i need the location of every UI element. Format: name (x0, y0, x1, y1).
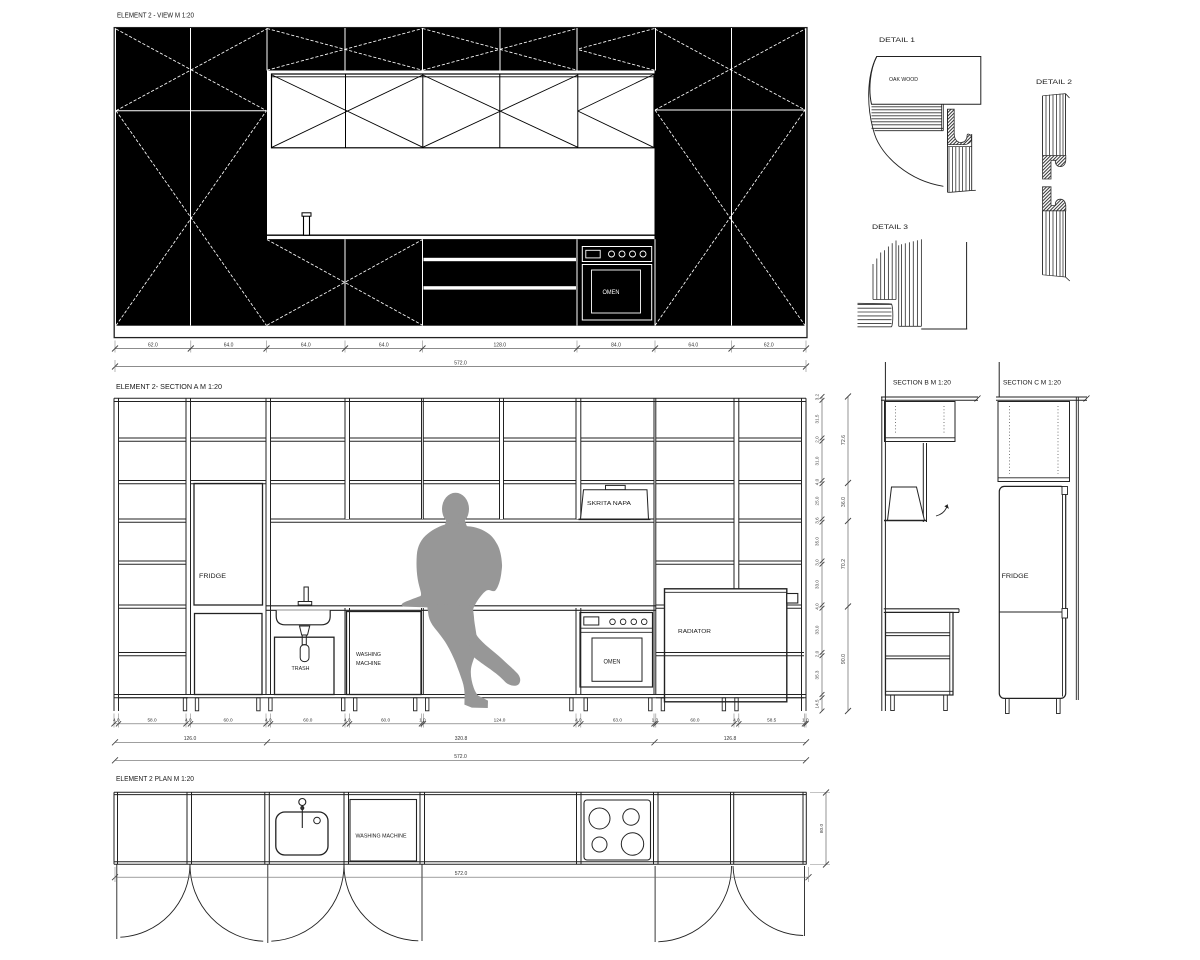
svg-text:1.0: 1.0 (419, 718, 426, 723)
svg-text:64.0: 64.0 (379, 342, 389, 348)
svg-text:3.0: 3.0 (815, 559, 820, 566)
svg-text:RADIATOR: RADIATOR (678, 629, 711, 635)
svg-text:58.5: 58.5 (767, 718, 777, 723)
svg-text:64.0: 64.0 (301, 342, 311, 348)
svg-text:3.2: 3.2 (815, 393, 820, 400)
svg-text:60.0: 60.0 (303, 718, 313, 723)
svg-text:SECTION C M 1:20: SECTION C M 1:20 (1003, 380, 1061, 387)
svg-text:4.0: 4.0 (344, 718, 351, 723)
svg-text:572.0: 572.0 (454, 360, 467, 366)
svg-text:2.0: 2.0 (815, 436, 820, 443)
svg-text:64.0: 64.0 (688, 342, 698, 348)
svg-text:128.0: 128.0 (494, 342, 507, 348)
svg-text:3.6: 3.6 (815, 517, 820, 524)
svg-text:4.0: 4.0 (185, 718, 192, 723)
svg-text:80.0: 80.0 (819, 824, 825, 834)
svg-text:572.0: 572.0 (455, 871, 468, 877)
svg-text:60.0: 60.0 (223, 718, 233, 723)
svg-text:OMEN: OMEN (603, 290, 620, 296)
svg-text:320.8: 320.8 (455, 736, 468, 742)
svg-text:126.8: 126.8 (724, 736, 737, 742)
svg-text:14.5: 14.5 (815, 699, 820, 708)
svg-text:DETAIL 1: DETAIL 1 (879, 37, 915, 44)
svg-text:TRASH: TRASH (292, 666, 310, 672)
svg-text:1.0: 1.0 (652, 718, 659, 723)
svg-text:62.0: 62.0 (764, 342, 774, 348)
svg-text:62.0: 62.0 (148, 342, 158, 348)
svg-text:35.0: 35.0 (815, 537, 820, 546)
svg-text:1.0: 1.0 (802, 718, 809, 723)
svg-text:60.0: 60.0 (690, 718, 700, 723)
svg-text:WASHING: WASHING (356, 652, 381, 658)
svg-text:31.0: 31.0 (815, 456, 820, 465)
svg-text:4.0: 4.0 (575, 718, 582, 723)
svg-text:4.0: 4.0 (733, 718, 740, 723)
svg-text:25.0: 25.0 (815, 496, 820, 505)
svg-text:MACHINE: MACHINE (356, 661, 381, 667)
svg-text:4.0: 4.0 (265, 718, 272, 723)
svg-text:WASHING MACHINE: WASHING MACHINE (356, 834, 407, 840)
svg-text:124.0: 124.0 (494, 718, 506, 723)
svg-text:OMEN: OMEN (604, 660, 621, 666)
svg-text:33.0: 33.0 (815, 580, 820, 589)
svg-text:4.0: 4.0 (113, 718, 120, 723)
svg-text:72.6: 72.6 (841, 435, 847, 445)
svg-text:35.3: 35.3 (815, 670, 820, 679)
svg-text:2.0: 2.0 (815, 650, 820, 657)
svg-text:31.5: 31.5 (815, 414, 820, 423)
svg-text:58.0: 58.0 (147, 718, 157, 723)
svg-text:36.0: 36.0 (841, 497, 847, 507)
svg-text:FRIDGE: FRIDGE (1002, 573, 1029, 580)
svg-text:70.2: 70.2 (841, 559, 847, 569)
svg-text:DETAIL 3: DETAIL 3 (872, 224, 908, 231)
svg-text:SECTION B M 1:20: SECTION B M 1:20 (893, 380, 951, 387)
svg-text:84.0: 84.0 (611, 342, 621, 348)
svg-text:90.0: 90.0 (841, 654, 847, 664)
svg-text:60.0: 60.0 (381, 718, 391, 723)
svg-text:SKRITA NAPA: SKRITA NAPA (587, 501, 631, 507)
svg-text:33.0: 33.0 (815, 625, 820, 634)
svg-text:OAK WOOD: OAK WOOD (889, 77, 918, 83)
svg-text:DETAIL 2: DETAIL 2 (1036, 79, 1072, 86)
svg-text:63.0: 63.0 (613, 718, 623, 723)
svg-text:572.0: 572.0 (454, 754, 467, 760)
svg-text:64.0: 64.0 (224, 342, 234, 348)
svg-text:4.0: 4.0 (815, 478, 820, 485)
svg-text:FRIDGE: FRIDGE (199, 573, 226, 580)
svg-text:ELEMENT 2 PLAN M 1:20: ELEMENT 2 PLAN M 1:20 (116, 776, 194, 783)
svg-text:4.0: 4.0 (815, 603, 820, 610)
svg-text:126.0: 126.0 (184, 736, 197, 742)
svg-text:ELEMENT 2- SECTION A M 1:20: ELEMENT 2- SECTION A M 1:20 (116, 384, 222, 391)
svg-text:ELEMENT 2 - VIEW M 1:20: ELEMENT 2 - VIEW M 1:20 (117, 13, 194, 20)
